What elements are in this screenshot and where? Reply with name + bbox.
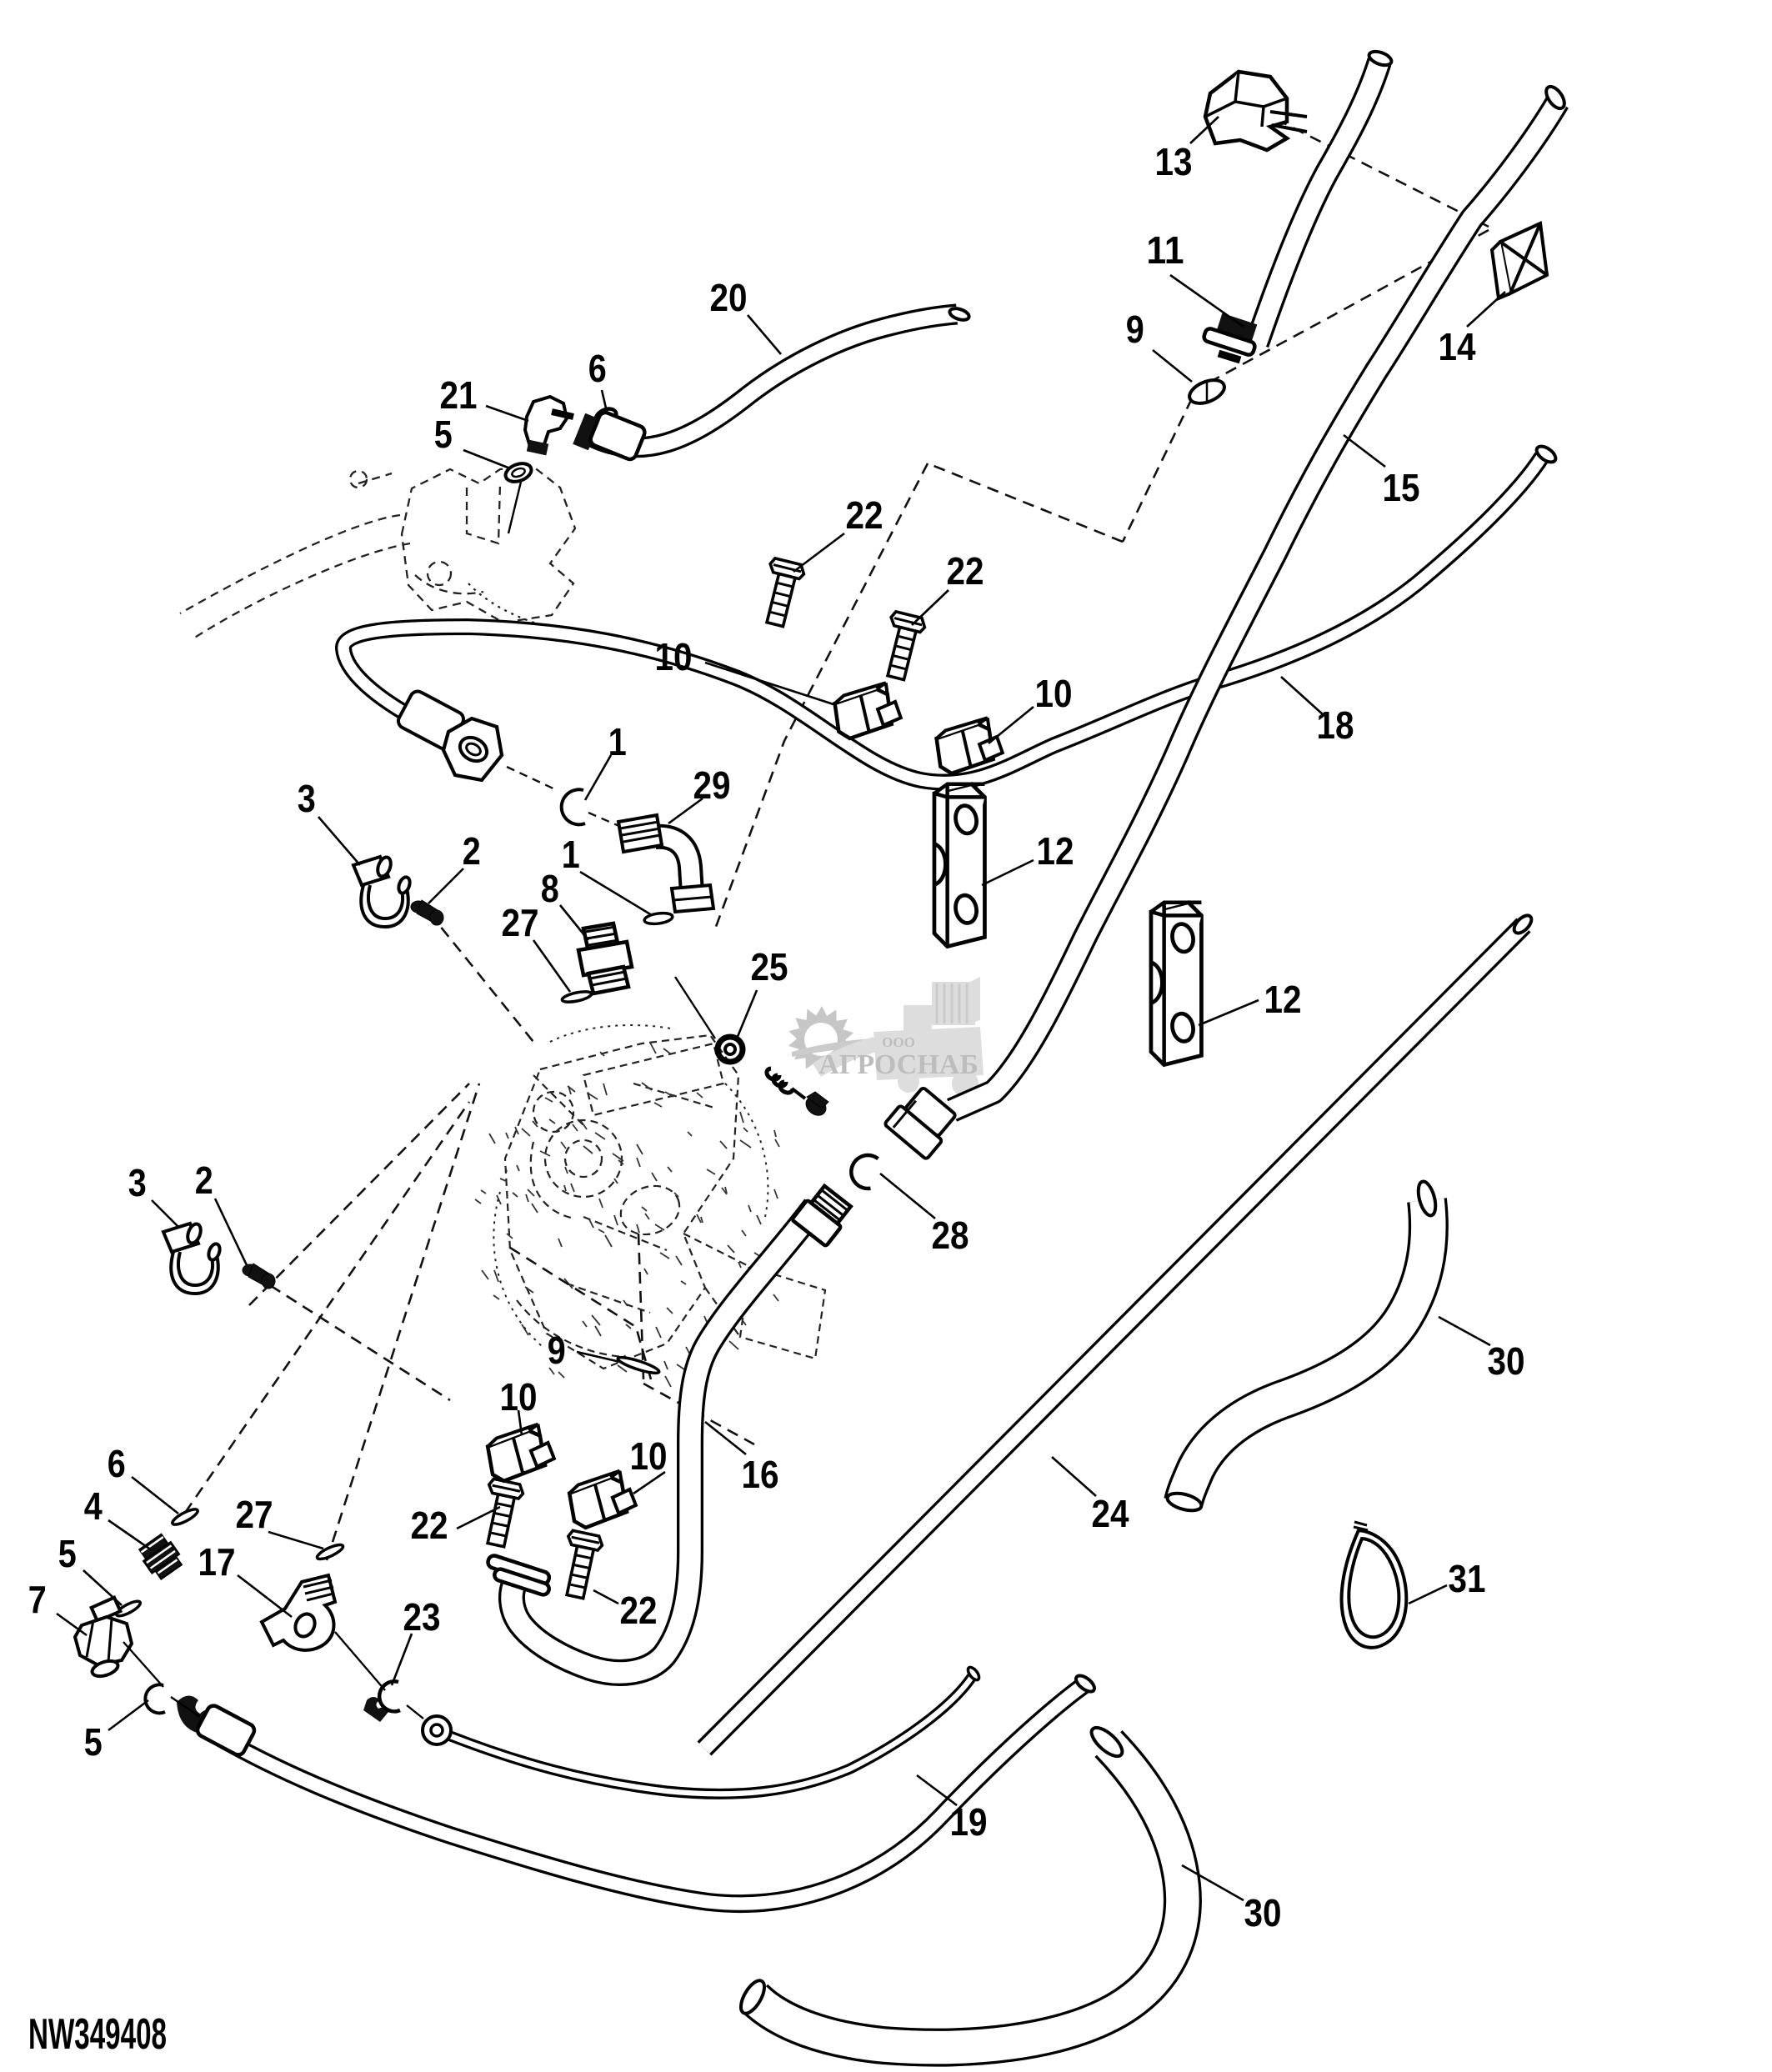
svg-text:15: 15: [1383, 466, 1420, 509]
svg-text:7: 7: [28, 1578, 47, 1621]
svg-text:27: 27: [236, 1493, 273, 1536]
svg-text:10: 10: [500, 1375, 538, 1419]
svg-text:11: 11: [1147, 228, 1184, 272]
svg-text:3: 3: [298, 777, 316, 820]
svg-text:АГРОСНАБ: АГРОСНАБ: [818, 1049, 979, 1080]
svg-text:22: 22: [620, 1589, 658, 1632]
svg-text:5: 5: [434, 413, 453, 456]
svg-text:28: 28: [932, 1214, 969, 1257]
svg-text:18: 18: [1317, 703, 1354, 747]
svg-text:23: 23: [403, 1595, 441, 1639]
svg-text:ООО: ООО: [882, 1034, 915, 1050]
svg-text:3: 3: [128, 1161, 147, 1204]
svg-text:10: 10: [630, 1434, 668, 1478]
svg-text:22: 22: [846, 493, 883, 537]
svg-text:5: 5: [84, 1720, 103, 1764]
svg-text:16: 16: [742, 1453, 779, 1496]
svg-text:NW349408: NW349408: [28, 2010, 167, 2059]
svg-text:30: 30: [1488, 1339, 1525, 1383]
svg-text:10: 10: [1035, 672, 1073, 715]
svg-text:12: 12: [1264, 978, 1302, 1021]
svg-text:12: 12: [1037, 829, 1074, 873]
svg-text:31: 31: [1449, 1557, 1486, 1600]
svg-text:6: 6: [108, 1442, 126, 1485]
svg-text:25: 25: [751, 945, 788, 988]
svg-text:2: 2: [463, 829, 481, 873]
svg-text:27: 27: [502, 901, 539, 944]
svg-text:8: 8: [541, 867, 559, 910]
svg-text:4: 4: [84, 1484, 103, 1528]
svg-text:22: 22: [411, 1504, 448, 1547]
svg-text:1: 1: [562, 833, 580, 876]
svg-text:1: 1: [608, 720, 627, 763]
svg-text:14: 14: [1439, 325, 1476, 368]
svg-text:17: 17: [198, 1540, 236, 1584]
svg-text:30: 30: [1244, 1891, 1282, 1934]
svg-text:29: 29: [693, 763, 731, 807]
svg-text:22: 22: [947, 549, 984, 593]
svg-text:9: 9: [548, 1329, 566, 1372]
svg-text:2: 2: [195, 1159, 213, 1202]
svg-text:13: 13: [1155, 140, 1193, 183]
svg-text:9: 9: [1126, 308, 1144, 351]
svg-text:21: 21: [440, 373, 478, 417]
svg-text:5: 5: [58, 1532, 77, 1575]
svg-text:10: 10: [655, 635, 693, 678]
svg-text:24: 24: [1092, 1492, 1129, 1535]
svg-text:20: 20: [710, 276, 748, 319]
svg-text:19: 19: [950, 1800, 988, 1844]
svg-text:6: 6: [588, 347, 607, 390]
